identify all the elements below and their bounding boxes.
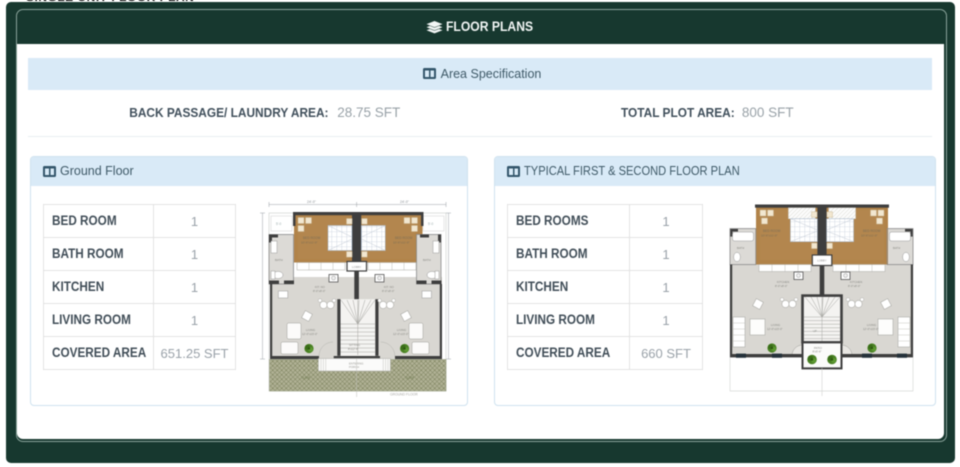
svg-text:8'-0"x8'-0": 8'-0"x8'-0" — [775, 284, 788, 288]
svg-text:GROUND FLOOR: GROUND FLOOR — [390, 393, 418, 397]
svg-text:8'-0"x8'-0": 8'-0"x8'-0" — [313, 289, 326, 293]
svg-text:LOBBY: LOBBY — [352, 265, 361, 269]
svg-text:10'-6"x11'-0": 10'-6"x11'-0" — [761, 234, 778, 238]
svg-text:8'-0"x8'-0": 8'-0"x8'-0" — [848, 284, 861, 288]
svg-text:5'-0: 5'-0 — [428, 222, 433, 226]
svg-text:TURF: TURF — [405, 376, 414, 380]
svg-text:BED ROOM: BED ROOM — [863, 229, 881, 233]
svg-text:12'-0"x15'-0": 12'-0"x15'-0" — [767, 327, 783, 331]
svg-text:24'-0": 24'-0" — [400, 200, 410, 204]
svg-text:BED ROOM: BED ROOM — [763, 229, 781, 233]
svg-text:BATH: BATH — [275, 258, 283, 262]
svg-text:8'x5'-6": 8'x5'-6" — [813, 350, 822, 354]
svg-text:12'-0"x15'-0": 12'-0"x15'-0" — [393, 332, 409, 336]
svg-text:5'-0: 5'-0 — [276, 222, 281, 226]
svg-text:BATH: BATH — [893, 246, 900, 250]
svg-text:8'-0"x8'-0": 8'-0"x8'-0" — [382, 289, 395, 293]
svg-text:10'-6"x11'-0": 10'-6"x11'-0" — [861, 234, 878, 238]
svg-text:BATH: BATH — [423, 258, 431, 262]
svg-text:10'-6"x11'-0": 10'-6"x11'-0" — [301, 241, 318, 245]
svg-text:12'-0"x15'-0": 12'-0"x15'-0" — [302, 332, 318, 336]
svg-text:UP: UP — [813, 329, 817, 333]
svg-text:10'-6"x11'-0": 10'-6"x11'-0" — [393, 241, 410, 245]
svg-text:TURF: TURF — [301, 376, 310, 380]
svg-text:BED ROOM: BED ROOM — [303, 236, 321, 240]
svg-text:BATH: BATH — [737, 246, 744, 250]
svg-text:12'-0"x15'-0": 12'-0"x15'-0" — [863, 327, 879, 331]
svg-text:8'x12'-6": 8'x12'-6" — [348, 347, 359, 351]
svg-text:24'-0": 24'-0" — [307, 200, 317, 204]
svg-text:LOBBY: LOBBY — [817, 259, 826, 263]
svg-text:BED ROOM: BED ROOM — [395, 236, 413, 240]
svg-text:PORCH: PORCH — [349, 365, 359, 369]
